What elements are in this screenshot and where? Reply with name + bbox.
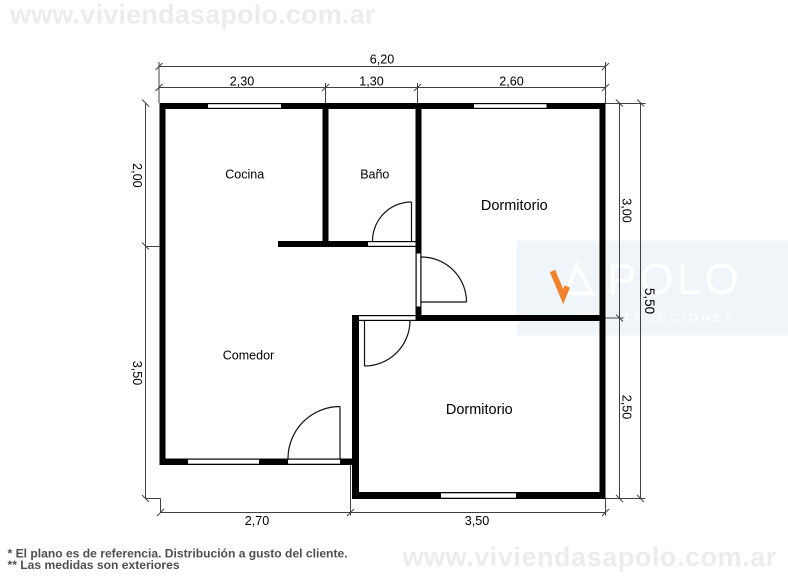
- svg-text:POLO: POLO: [607, 255, 742, 304]
- svg-text:3,00: 3,00: [620, 198, 634, 223]
- svg-text:2,70: 2,70: [245, 514, 270, 528]
- svg-text:** Las medidas son exteriores: ** Las medidas son exteriores: [8, 558, 180, 572]
- svg-text:Dormitorio: Dormitorio: [481, 198, 548, 214]
- svg-text:2,30: 2,30: [230, 74, 255, 88]
- svg-text:Baño: Baño: [360, 168, 389, 182]
- svg-text:6,20: 6,20: [370, 52, 395, 66]
- svg-text:Cocina: Cocina: [225, 168, 264, 182]
- svg-text:2,60: 2,60: [499, 74, 524, 88]
- svg-text:www.viviendasapolo.com.ar: www.viviendasapolo.com.ar: [402, 542, 777, 572]
- svg-text:3,50: 3,50: [465, 514, 490, 528]
- svg-text:Comedor: Comedor: [223, 349, 274, 363]
- svg-text:Dormitorio: Dormitorio: [446, 402, 513, 418]
- svg-text:3,50: 3,50: [130, 361, 144, 386]
- svg-text:www.viviendasapolo.com.ar: www.viviendasapolo.com.ar: [9, 0, 376, 30]
- svg-text:2,50: 2,50: [620, 395, 634, 420]
- svg-text:2,00: 2,00: [130, 163, 144, 188]
- svg-text:5,50: 5,50: [642, 288, 657, 314]
- svg-text:1,30: 1,30: [359, 74, 384, 88]
